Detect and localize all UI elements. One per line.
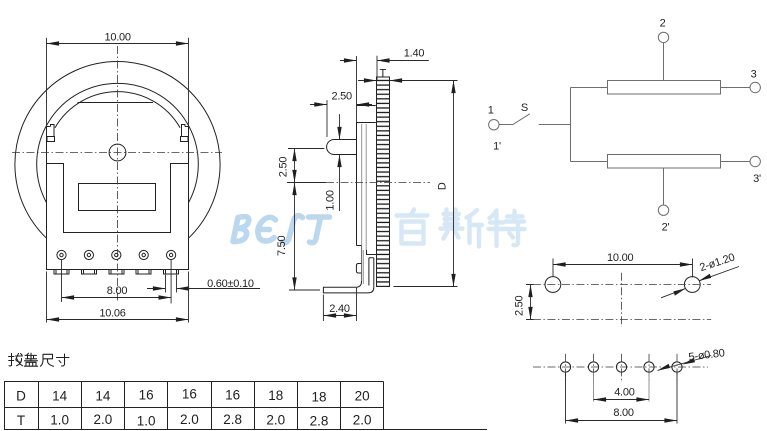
svg-text:2: 2 (660, 17, 666, 29)
svg-text:1.40: 1.40 (404, 47, 425, 59)
svg-text:0.60±0.10: 0.60±0.10 (207, 278, 254, 290)
svg-text:3: 3 (751, 68, 757, 80)
svg-text:2.40: 2.40 (329, 303, 350, 315)
svg-text:T: T (17, 413, 25, 428)
svg-text:2.0: 2.0 (94, 412, 113, 427)
svg-text:16: 16 (182, 386, 197, 401)
svg-text:2.8: 2.8 (310, 414, 329, 429)
svg-text:2.0: 2.0 (353, 413, 372, 428)
svg-text:18: 18 (311, 389, 326, 404)
svg-text:16: 16 (139, 387, 154, 402)
svg-text:2': 2' (662, 222, 670, 234)
svg-text:8.00: 8.00 (613, 407, 634, 419)
svg-text:1.00: 1.00 (324, 190, 336, 211)
svg-text:10.00: 10.00 (104, 31, 130, 43)
svg-text:2.8: 2.8 (223, 412, 242, 427)
svg-text:8.00: 8.00 (107, 285, 128, 297)
svg-text:2.50: 2.50 (278, 157, 290, 178)
svg-text:2.50: 2.50 (331, 91, 352, 103)
svg-text:D: D (16, 388, 26, 403)
svg-text:14: 14 (95, 388, 111, 403)
svg-text:7.50: 7.50 (276, 235, 288, 256)
svg-text:2.0: 2.0 (180, 412, 199, 427)
svg-text:10.06: 10.06 (99, 307, 125, 319)
svg-text:T: T (380, 68, 387, 80)
svg-text:18: 18 (268, 388, 283, 403)
svg-text:1.0: 1.0 (137, 414, 156, 429)
svg-text:14: 14 (52, 388, 68, 403)
svg-text:16: 16 (225, 387, 240, 402)
svg-text:D: D (437, 182, 449, 190)
svg-text:2.0: 2.0 (266, 413, 285, 428)
svg-text:2.50: 2.50 (513, 295, 525, 316)
svg-text:4.00: 4.00 (614, 387, 635, 399)
svg-text:1: 1 (488, 105, 494, 117)
svg-text:S: S (521, 102, 528, 114)
svg-text:20: 20 (355, 388, 370, 403)
svg-text:1': 1' (493, 141, 501, 153)
svg-text:10.00: 10.00 (607, 252, 633, 264)
svg-text:1.0: 1.0 (50, 413, 69, 428)
svg-text:3': 3' (753, 173, 761, 185)
